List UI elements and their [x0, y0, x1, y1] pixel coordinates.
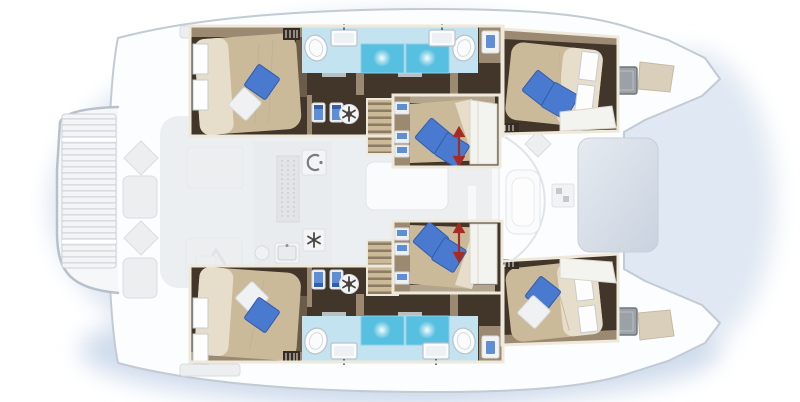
window	[193, 44, 208, 74]
floor-plan-canvas	[0, 0, 800, 402]
corridor-cabinet	[307, 95, 312, 135]
swim-platform-stern	[62, 114, 116, 268]
mid-cabin-port	[393, 95, 500, 168]
locker-latch	[556, 188, 562, 194]
locker-lid	[552, 184, 574, 207]
drawer-icon	[395, 131, 409, 143]
drawer-icon	[395, 145, 409, 157]
saloon-table	[366, 162, 448, 210]
platform-divider	[62, 240, 116, 243]
window	[579, 51, 599, 81]
trampoline	[578, 138, 658, 252]
drawer-icon	[395, 243, 409, 255]
catamaran-floor-plan	[0, 0, 800, 402]
forward-cockpit-cushion	[512, 178, 534, 226]
window	[193, 334, 208, 364]
drawer-icon	[486, 35, 495, 48]
locker-latch	[563, 196, 569, 202]
stern-assembly	[57, 107, 118, 293]
drawer-icon	[395, 228, 409, 240]
mid-cabin-starboard	[393, 221, 502, 293]
seat-icon	[312, 103, 325, 122]
dish-rack-icon	[277, 156, 299, 222]
cockpit-sofa	[123, 176, 157, 218]
window	[193, 298, 208, 328]
bow-sunpad	[638, 310, 674, 340]
saloon-door-panel	[492, 168, 498, 222]
aft-cabin-starboard	[191, 267, 307, 364]
stove-knob	[319, 161, 322, 164]
bathroom-door	[398, 73, 422, 77]
bathroom-wall	[356, 73, 364, 95]
shower-glow	[418, 321, 436, 339]
bathroom-wall	[356, 294, 364, 316]
bathroom-wall	[450, 294, 458, 316]
shower-glow	[373, 49, 391, 67]
closet	[470, 100, 497, 164]
bathroom-door	[322, 312, 346, 316]
deck-locker	[180, 364, 240, 376]
snowflake-icon	[303, 229, 325, 251]
drawer-icon	[395, 102, 409, 114]
forward-cabin-port	[502, 29, 618, 134]
forward-cabin-starboard	[502, 254, 618, 345]
platform-divider	[62, 138, 116, 141]
shower-glow	[373, 321, 391, 339]
closet	[470, 224, 497, 284]
shower-glow	[418, 49, 436, 67]
vent-grille-icon	[502, 123, 519, 133]
window	[193, 80, 208, 110]
corridor-cabinet	[307, 267, 312, 307]
fan-icon	[340, 105, 359, 124]
galley-sink-icon	[275, 243, 299, 263]
bow-locker	[552, 184, 574, 207]
closet	[560, 258, 616, 283]
drawer-icon	[486, 341, 495, 354]
bathroom-wall	[450, 73, 458, 95]
aft-cabin-port	[191, 27, 307, 135]
sink-tap	[286, 244, 289, 247]
vent-grille-icon	[283, 28, 300, 40]
galley-round-burner	[255, 246, 269, 260]
saloon-door-panel	[468, 186, 476, 222]
drawer-icon	[395, 272, 409, 284]
window	[578, 305, 598, 333]
utility-cabinet-port	[479, 27, 502, 63]
utility-cabinet-starboard	[479, 326, 502, 362]
bathroom-door	[322, 73, 346, 77]
seat-icon	[312, 270, 325, 289]
sink-basin	[278, 246, 296, 260]
stove-icon	[302, 150, 326, 175]
fan-icon	[340, 275, 359, 294]
bow-sunpad	[638, 62, 674, 92]
bathroom-door	[398, 312, 422, 316]
cockpit-sofa	[123, 258, 157, 298]
